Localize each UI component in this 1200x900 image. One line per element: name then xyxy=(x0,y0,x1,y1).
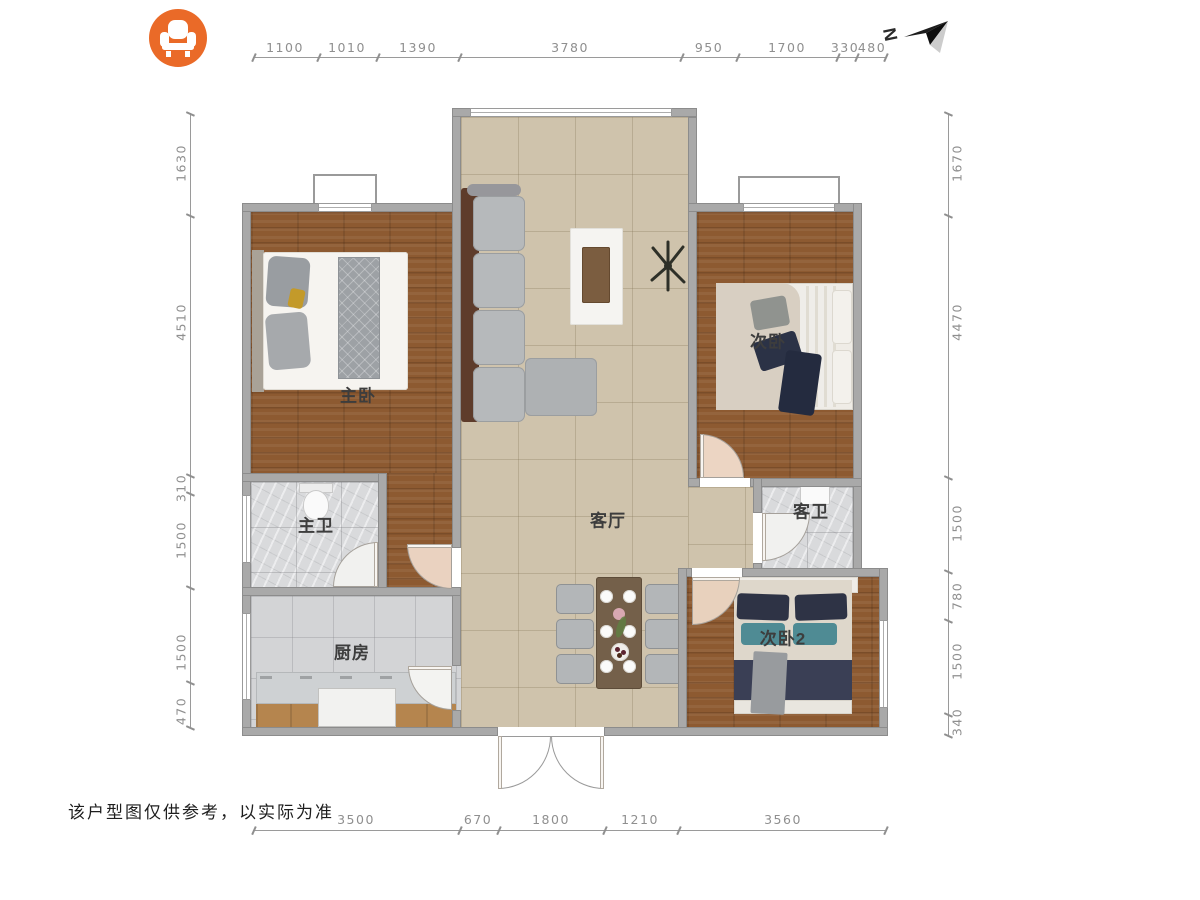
hallway-floor xyxy=(688,487,753,568)
plate xyxy=(600,590,613,603)
room-label-master-bath: 主卫 xyxy=(298,512,334,537)
wall xyxy=(742,568,888,577)
door-leaf xyxy=(692,577,740,581)
dim-top-6: 330 xyxy=(831,40,859,55)
dim-bottom-0: 3500 xyxy=(337,812,375,827)
window xyxy=(318,203,372,212)
coffee-table xyxy=(582,247,610,303)
door-leaf xyxy=(762,513,766,561)
dim-line-bottom xyxy=(253,830,885,831)
north-arrow-icon: N xyxy=(876,10,956,60)
wall xyxy=(688,478,700,487)
fruit-plate xyxy=(611,643,629,661)
sofa-cushion xyxy=(473,310,525,365)
dim-right-1: 4470 xyxy=(950,303,965,341)
dim-left-3: 1500 xyxy=(174,521,189,559)
master-bed-pillow xyxy=(265,311,312,370)
dim-left-0: 1630 xyxy=(174,144,189,182)
wall xyxy=(688,117,697,487)
dim-top-1: 1010 xyxy=(328,40,366,55)
door-leaf xyxy=(374,542,378,587)
wall xyxy=(853,203,862,577)
bedroom2-pillow xyxy=(832,350,852,404)
sofa-cushion xyxy=(473,196,525,251)
bedroom2-pillow xyxy=(832,290,852,344)
fruit xyxy=(617,653,622,658)
room-label-master-bedroom: 主卧 xyxy=(340,382,376,407)
dim-bottom-1: 670 xyxy=(464,812,492,827)
bedroom3-pillow xyxy=(795,593,848,621)
wall xyxy=(753,478,762,513)
sofa-cushion xyxy=(473,253,525,308)
dim-right-2: 1500 xyxy=(950,504,965,542)
plate xyxy=(623,660,636,673)
plate xyxy=(600,625,613,638)
kitchen-appliance xyxy=(318,688,396,727)
door-leaf xyxy=(407,544,452,548)
dim-line-top xyxy=(253,57,885,58)
room-label-bedroom2: 次卧 xyxy=(750,328,786,353)
dim-bottom-3: 1210 xyxy=(621,812,659,827)
room-label-guest-bath: 客卫 xyxy=(793,498,829,523)
dim-top-2: 1390 xyxy=(399,40,437,55)
plate xyxy=(623,590,636,603)
dim-left-1: 4510 xyxy=(174,303,189,341)
master-bed-runner xyxy=(338,257,380,379)
dim-line-left xyxy=(190,113,191,727)
dim-top-4: 950 xyxy=(695,40,723,55)
dim-bottom-4: 3560 xyxy=(764,812,802,827)
dim-top-3: 3780 xyxy=(551,40,589,55)
wall xyxy=(604,727,888,736)
room-label-kitchen: 厨房 xyxy=(334,639,370,664)
wall xyxy=(452,108,461,548)
door-leaf xyxy=(498,736,502,789)
sofa-cushion xyxy=(473,367,525,422)
entrance-door-right xyxy=(551,736,604,789)
room-label-bedroom3: 次卧2 xyxy=(760,625,806,650)
door-leaf xyxy=(700,434,704,478)
dim-right-3: 780 xyxy=(950,582,965,610)
brand-logo xyxy=(147,7,209,69)
wall xyxy=(452,589,461,666)
sofa-icon xyxy=(147,7,209,69)
disclaimer-text: 该户型图仅供参考，以实际为准 xyxy=(68,798,334,823)
plate xyxy=(600,660,613,673)
dim-left-4: 1500 xyxy=(174,633,189,671)
dim-left-2: 310 xyxy=(174,474,189,502)
dining-chair xyxy=(556,584,594,614)
dining-chair xyxy=(556,654,594,684)
plant-icon xyxy=(650,240,686,292)
plant xyxy=(650,240,686,292)
wall xyxy=(750,478,862,487)
fruit xyxy=(615,647,620,652)
door-leaf xyxy=(600,736,604,789)
tick xyxy=(186,725,195,730)
towel xyxy=(750,651,787,715)
window xyxy=(242,495,251,563)
dining-chair xyxy=(556,619,594,649)
dim-left-5: 470 xyxy=(174,697,189,725)
window xyxy=(743,203,835,212)
window xyxy=(879,620,888,708)
window xyxy=(242,613,251,700)
tick xyxy=(883,826,888,835)
bedroom3-pillow xyxy=(737,593,790,621)
dim-right-4: 1500 xyxy=(950,642,965,680)
compass: N xyxy=(876,10,956,60)
dim-top-5: 1700 xyxy=(768,40,806,55)
dim-top-7: 480 xyxy=(858,40,886,55)
dim-right-5: 340 xyxy=(950,708,965,736)
door-leaf xyxy=(408,666,452,670)
room-label-living: 客厅 xyxy=(590,507,626,532)
sofa-chaise xyxy=(525,358,597,416)
dim-right-0: 1670 xyxy=(950,144,965,182)
clothes-item xyxy=(750,295,791,331)
dim-bottom-2: 1800 xyxy=(532,812,570,827)
sofa-armrest xyxy=(467,184,521,196)
wall xyxy=(242,727,498,736)
wall xyxy=(242,587,461,596)
wall xyxy=(242,473,387,482)
wall xyxy=(378,473,387,596)
entrance-door-left xyxy=(498,736,551,789)
floorplan-page: N xyxy=(0,0,1200,900)
wall xyxy=(678,568,687,736)
window xyxy=(470,108,672,117)
dim-top-0: 1100 xyxy=(266,40,304,55)
